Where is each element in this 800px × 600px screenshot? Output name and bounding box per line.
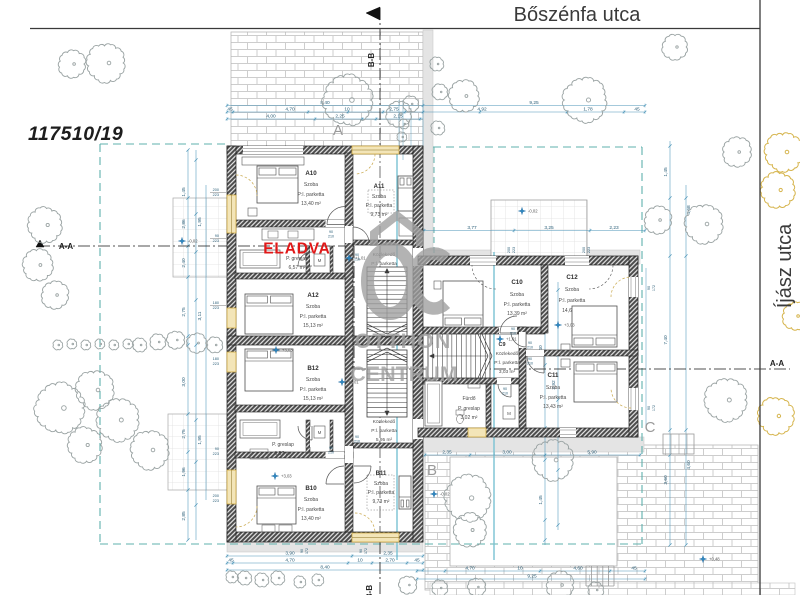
svg-text:A11: A11 <box>374 184 385 190</box>
svg-text:B-B: B-B <box>365 585 374 595</box>
svg-text:6,57 m²: 6,57 m² <box>275 451 292 457</box>
svg-text:P:l. parketta: P:l. parketta <box>368 490 395 496</box>
svg-text:223: 223 <box>213 499 219 503</box>
svg-text:45: 45 <box>631 565 637 571</box>
svg-text:Fürdő: Fürdő <box>462 396 475 402</box>
svg-text:180: 180 <box>213 357 219 361</box>
svg-text:P:l. parketta: P:l. parketta <box>298 507 325 513</box>
svg-text:Íjász utca: Íjász utca <box>773 223 796 308</box>
svg-text:4,70: 4,70 <box>285 106 295 112</box>
svg-text:B: B <box>427 462 437 479</box>
svg-text:Közlekedő: Közlekedő <box>373 419 396 425</box>
svg-text:45: 45 <box>228 557 234 563</box>
svg-text:B10: B10 <box>305 485 317 492</box>
svg-text:10: 10 <box>517 565 523 571</box>
svg-text:4,60: 4,60 <box>573 565 583 571</box>
svg-text:1,78: 1,78 <box>583 106 593 112</box>
svg-text:2,70: 2,70 <box>385 557 395 563</box>
svg-text:117510/19: 117510/19 <box>28 123 123 145</box>
svg-text:223: 223 <box>587 247 591 253</box>
svg-text:223: 223 <box>213 362 219 366</box>
svg-text:-0,02: -0,02 <box>188 239 198 244</box>
svg-text:M: M <box>318 430 322 435</box>
svg-text:1,95: 1,95 <box>197 435 203 445</box>
svg-text:223: 223 <box>213 239 219 243</box>
svg-text:C: C <box>645 419 656 436</box>
svg-text:13,43 m²: 13,43 m² <box>543 404 563 410</box>
svg-text:223: 223 <box>213 306 219 310</box>
svg-text:210: 210 <box>527 346 533 350</box>
svg-text:172: 172 <box>364 548 368 554</box>
svg-text:+0,48: +0,48 <box>709 557 720 562</box>
svg-text:P:l. parketta: P:l. parketta <box>559 298 586 304</box>
svg-text:2,35: 2,35 <box>383 550 393 556</box>
svg-text:Szoba: Szoba <box>306 304 320 310</box>
svg-text:Szoba: Szoba <box>372 194 386 200</box>
svg-text:200: 200 <box>582 247 586 253</box>
svg-text:90: 90 <box>215 234 219 238</box>
svg-text:4,00: 4,00 <box>266 113 276 119</box>
svg-text:3,00: 3,00 <box>502 449 512 455</box>
svg-text:2,75: 2,75 <box>389 106 399 112</box>
svg-text:P:l. parketta: P:l. parketta <box>300 387 327 393</box>
svg-text:2,23: 2,23 <box>609 225 619 231</box>
svg-text:Szoba: Szoba <box>546 385 560 391</box>
svg-text:ELADVA: ELADVA <box>263 241 330 258</box>
svg-text:90: 90 <box>300 549 304 553</box>
svg-text:90: 90 <box>647 286 651 290</box>
svg-text:2,40: 2,40 <box>181 258 187 268</box>
svg-text:90: 90 <box>215 447 219 451</box>
svg-text:210: 210 <box>354 440 360 444</box>
svg-text:1,95: 1,95 <box>197 217 203 227</box>
svg-text:B-B: B-B <box>367 53 376 67</box>
svg-text:A-A: A-A <box>770 359 784 368</box>
svg-text:1,45: 1,45 <box>538 495 544 505</box>
svg-text:223: 223 <box>213 452 219 456</box>
svg-text:90: 90 <box>511 327 515 331</box>
svg-text:1,45: 1,45 <box>181 187 187 197</box>
svg-text:223: 223 <box>512 247 516 253</box>
svg-text:200: 200 <box>213 494 219 498</box>
svg-text:210: 210 <box>510 332 516 336</box>
svg-text:210: 210 <box>527 362 533 366</box>
svg-text:P:l. parketta: P:l. parketta <box>540 395 567 401</box>
svg-text:A12: A12 <box>307 292 319 299</box>
svg-text:4,60: 4,60 <box>686 460 692 470</box>
svg-text:9,25: 9,25 <box>529 100 539 106</box>
svg-text:P:l. parketta: P:l. parketta <box>366 203 393 209</box>
svg-text:210: 210 <box>354 258 360 262</box>
svg-text:P:l. parketta: P:l. parketta <box>504 302 531 308</box>
svg-text:C11: C11 <box>547 372 559 379</box>
svg-text:90: 90 <box>355 253 359 257</box>
svg-text:210: 210 <box>502 392 508 396</box>
svg-text:3,00: 3,00 <box>181 377 187 387</box>
svg-text:45: 45 <box>634 106 640 112</box>
svg-text:M: M <box>318 258 322 263</box>
svg-text:180: 180 <box>213 301 219 305</box>
svg-text:172: 172 <box>305 548 309 554</box>
svg-text:210: 210 <box>328 235 334 239</box>
svg-text:9,25: 9,25 <box>527 573 537 579</box>
svg-text:A10: A10 <box>305 170 317 177</box>
svg-text:13,40 m²: 13,40 m² <box>301 516 321 522</box>
svg-text:200: 200 <box>213 188 219 192</box>
svg-text:P. greslap: P. greslap <box>272 442 294 448</box>
svg-text:90: 90 <box>528 357 532 361</box>
svg-text:3,11: 3,11 <box>197 311 203 320</box>
svg-text:10: 10 <box>344 106 350 112</box>
svg-text:2,25: 2,25 <box>335 113 345 119</box>
svg-text:2,75: 2,75 <box>181 429 187 439</box>
svg-text:P:l. parketta: P:l. parketta <box>300 314 327 320</box>
svg-text:-0,02: -0,02 <box>440 492 450 497</box>
svg-text:45: 45 <box>227 106 233 112</box>
svg-text:Szoba: Szoba <box>306 377 320 383</box>
svg-text:210: 210 <box>328 451 334 455</box>
svg-text:2,85: 2,85 <box>181 511 187 521</box>
svg-text:P:l. parketta: P:l. parketta <box>371 428 397 434</box>
svg-text:Szoba: Szoba <box>510 292 524 298</box>
svg-text:90: 90 <box>329 230 333 234</box>
svg-text:B12: B12 <box>307 365 319 372</box>
svg-text:4,70: 4,70 <box>465 565 475 571</box>
svg-text:2,86: 2,86 <box>181 219 187 229</box>
svg-text:+3,03: +3,03 <box>564 323 575 328</box>
svg-text:3,25: 3,25 <box>544 225 554 231</box>
svg-text:4,70: 4,70 <box>285 557 295 563</box>
svg-text:5,90: 5,90 <box>587 449 597 455</box>
svg-text:Szoba: Szoba <box>565 287 579 293</box>
svg-text:172: 172 <box>652 405 656 411</box>
svg-text:90: 90 <box>528 341 532 345</box>
svg-text:3,03 m²: 3,03 m² <box>499 369 516 375</box>
svg-text:Szoba: Szoba <box>304 182 318 188</box>
svg-text:13,39 m²: 13,39 m² <box>507 311 527 317</box>
svg-text:C10: C10 <box>511 279 523 286</box>
svg-text:M: M <box>507 411 511 416</box>
svg-text:2,15: 2,15 <box>393 113 403 119</box>
svg-text:+3,03: +3,03 <box>281 474 292 479</box>
svg-text:90: 90 <box>503 387 507 391</box>
svg-text:P:l. parketta: P:l. parketta <box>494 360 520 366</box>
svg-text:200: 200 <box>507 247 511 253</box>
svg-text:OTTHON: OTTHON <box>355 329 452 353</box>
svg-text:A: A <box>333 122 343 139</box>
svg-text:C12: C12 <box>566 274 578 281</box>
svg-text:90: 90 <box>329 446 333 450</box>
svg-text:2,75: 2,75 <box>181 307 187 317</box>
svg-text:45: 45 <box>414 557 420 563</box>
svg-text:Szoba: Szoba <box>304 497 318 503</box>
svg-text:8,40: 8,40 <box>320 564 330 570</box>
svg-text:10: 10 <box>357 557 363 563</box>
svg-text:3,90: 3,90 <box>285 550 295 556</box>
svg-text:90: 90 <box>647 406 651 410</box>
svg-text:3,60: 3,60 <box>663 475 669 485</box>
svg-text:1,96: 1,96 <box>181 467 187 477</box>
svg-text:B11: B11 <box>376 471 387 477</box>
svg-text:5,95 m²: 5,95 m² <box>376 437 393 443</box>
svg-text:Közlekedő: Közlekedő <box>496 351 519 357</box>
svg-text:Szoba: Szoba <box>374 481 388 487</box>
svg-text:7,40: 7,40 <box>663 335 669 345</box>
svg-text:+1,01: +1,01 <box>506 337 517 342</box>
svg-text:4,92: 4,92 <box>477 106 487 112</box>
svg-text:90: 90 <box>359 549 363 553</box>
svg-text:15,13 m²: 15,13 m² <box>303 323 323 329</box>
svg-text:2,35: 2,35 <box>442 449 452 455</box>
svg-text:9,73 m²: 9,73 m² <box>373 499 390 505</box>
svg-text:1,45: 1,45 <box>663 167 669 177</box>
svg-text:A-A: A-A <box>59 242 73 251</box>
svg-text:+3,03: +3,03 <box>282 348 293 353</box>
svg-text:-0,02: -0,02 <box>528 209 538 214</box>
svg-text:3,77: 3,77 <box>467 225 477 231</box>
svg-text:13,40 m²: 13,40 m² <box>301 201 321 207</box>
svg-text:15,13 m²: 15,13 m² <box>303 396 323 402</box>
svg-text:CENTRUM: CENTRUM <box>350 362 458 386</box>
svg-text:Bőszénfa utca: Bőszénfa utca <box>514 4 642 26</box>
svg-text:223: 223 <box>213 193 219 197</box>
svg-text:P:l. parketta: P:l. parketta <box>298 192 325 198</box>
svg-text:172: 172 <box>652 285 656 291</box>
svg-text:P. greslap: P. greslap <box>458 406 480 412</box>
svg-text:90: 90 <box>355 435 359 439</box>
svg-text:C9: C9 <box>498 342 505 348</box>
